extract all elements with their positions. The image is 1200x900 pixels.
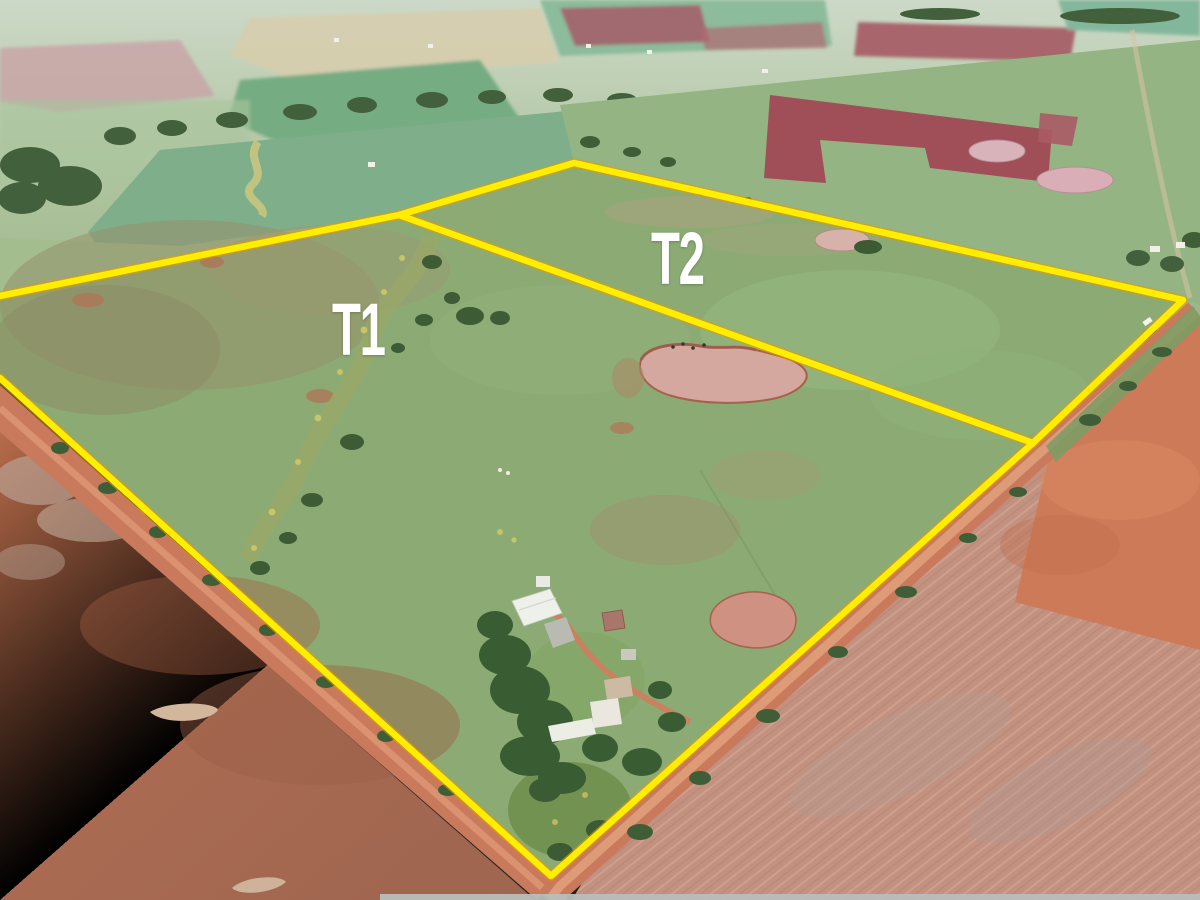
tree — [444, 292, 460, 304]
tree — [422, 255, 442, 269]
flower-dot — [582, 792, 588, 798]
tree — [627, 824, 653, 840]
tree — [959, 533, 977, 543]
farm-building — [428, 44, 433, 48]
shed-white — [536, 576, 550, 587]
tree — [490, 311, 510, 325]
tree — [416, 92, 448, 108]
tree — [415, 314, 433, 326]
tree — [340, 434, 364, 450]
flower-dot — [269, 509, 276, 516]
flower-dot — [295, 459, 301, 465]
dirt-mottle — [1000, 515, 1120, 575]
tree — [283, 104, 317, 120]
tree — [250, 561, 270, 575]
photo-edge-strip — [380, 894, 1200, 900]
tree — [582, 734, 618, 762]
rough-grass-patch — [0, 285, 220, 415]
farm-building — [586, 44, 591, 48]
farm-building — [1176, 242, 1185, 248]
tree — [0, 182, 46, 214]
farm-building — [647, 50, 652, 54]
flower-dot — [399, 255, 405, 261]
aerial-tract-photo: T1 T2 — [0, 0, 1200, 900]
tree — [216, 112, 248, 128]
brown-grass-patch — [710, 450, 820, 500]
tree — [478, 90, 506, 104]
tree — [1060, 8, 1180, 24]
flower-dot — [251, 545, 257, 551]
tree — [828, 646, 848, 658]
tree — [895, 586, 917, 598]
farm-building — [1150, 246, 1160, 252]
cow-speck — [691, 346, 695, 350]
background-pond-1 — [969, 140, 1025, 162]
building-tan — [604, 676, 633, 700]
cow-speck — [498, 468, 502, 472]
tree — [1152, 347, 1172, 357]
tree — [660, 157, 676, 167]
tree — [543, 88, 573, 102]
farm-pond-small — [710, 592, 796, 648]
maroon-patch-right — [1038, 113, 1078, 146]
tree — [157, 120, 187, 136]
background-pond-2 — [1037, 167, 1113, 193]
background-field-maroon-1 — [560, 5, 710, 46]
tree — [900, 8, 980, 20]
tree — [622, 748, 662, 776]
tree — [279, 532, 297, 544]
building-ruin — [602, 610, 625, 631]
flower-dot — [315, 415, 322, 422]
bare-dirt-spot — [72, 293, 104, 307]
flower-dot — [511, 537, 516, 542]
tree — [1160, 256, 1184, 272]
tree — [1126, 250, 1150, 266]
tree — [580, 136, 600, 148]
tree — [658, 712, 686, 732]
tree — [1079, 414, 1101, 426]
tract-label-t2: T2 — [651, 222, 704, 296]
cow-speck — [681, 342, 685, 346]
pond-dam-mound — [612, 358, 644, 398]
tree — [1119, 381, 1137, 391]
tree — [347, 97, 377, 113]
farm-house — [590, 698, 622, 728]
tree — [477, 611, 513, 639]
bare-dirt-spot — [610, 422, 634, 434]
flower-dot — [497, 529, 503, 535]
cow-speck — [671, 345, 675, 349]
farm-building — [334, 38, 339, 42]
farm-building — [368, 162, 375, 167]
tract-label-t1: T1 — [332, 293, 385, 367]
tree — [538, 762, 586, 794]
landscape — [0, 0, 1200, 900]
farm-building — [762, 69, 768, 73]
tree — [38, 166, 102, 206]
shed-small — [621, 649, 636, 660]
brown-grass-patch — [590, 495, 740, 565]
tree — [456, 307, 484, 325]
tree — [301, 493, 323, 507]
tree — [391, 343, 405, 353]
tree — [854, 240, 882, 254]
flower-dot — [552, 819, 558, 825]
tree — [104, 127, 136, 145]
cow-speck — [506, 471, 510, 475]
tree — [756, 709, 780, 723]
tree — [648, 681, 672, 699]
tree — [689, 771, 711, 785]
tree — [1009, 487, 1027, 497]
tree — [623, 147, 641, 157]
cow-speck — [702, 343, 706, 347]
